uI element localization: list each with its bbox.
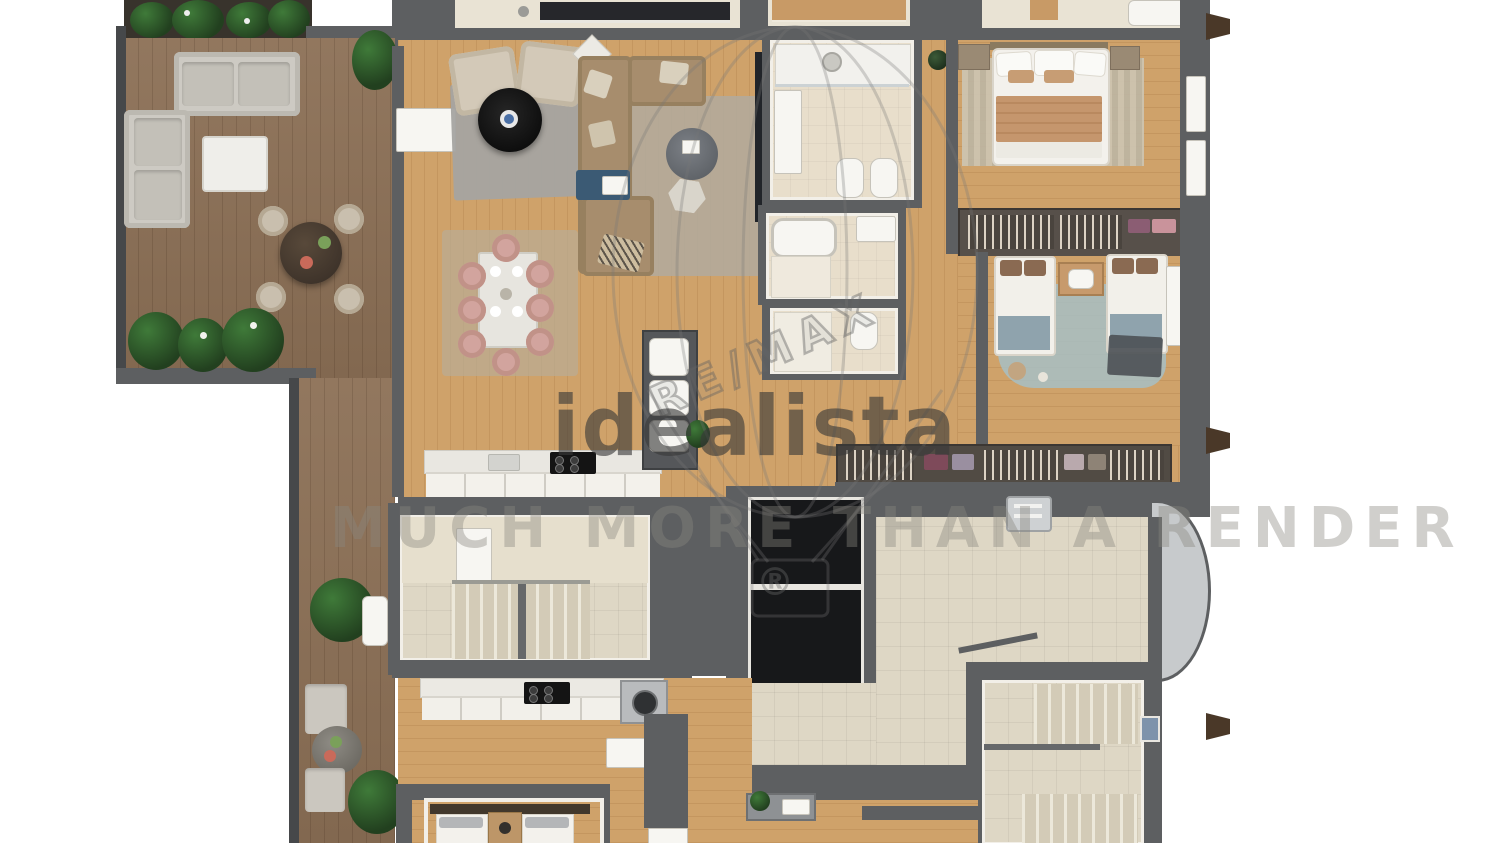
floor-plan-render: RE/MAX idealista ® MUCH MORE THAN A REND… [0,0,1500,843]
remax-balloon-watermark [0,0,1500,843]
